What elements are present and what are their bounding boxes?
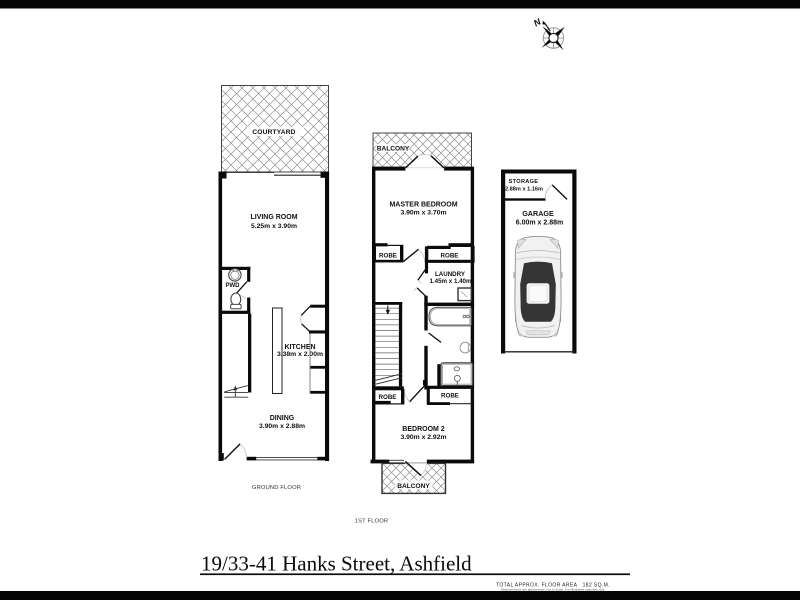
svg-text:BEDROOM 2: BEDROOM 2 — [402, 426, 445, 433]
svg-text:ROBE: ROBE — [441, 252, 459, 259]
svg-text:MASTER BEDROOM: MASTER BEDROOM — [389, 202, 457, 209]
svg-text:3.90m x 2.92m: 3.90m x 2.92m — [400, 434, 446, 441]
svg-text:LAUNDRY: LAUNDRY — [435, 271, 466, 278]
svg-text:BALCONY: BALCONY — [397, 483, 430, 490]
svg-text:GARAGE: GARAGE — [522, 209, 554, 218]
svg-text:3.38m x 2.00m: 3.38m x 2.00m — [277, 351, 323, 358]
svg-text:ROBE: ROBE — [441, 393, 459, 400]
svg-text:2.88m x 1.16m: 2.88m x 1.16m — [505, 187, 543, 193]
svg-text:KITCHEN: KITCHEN — [284, 344, 315, 351]
svg-text:ROBE: ROBE — [379, 252, 397, 259]
svg-text:3.90m x 3.70m: 3.90m x 3.70m — [400, 210, 446, 217]
svg-text:BALCONY: BALCONY — [377, 146, 410, 153]
svg-text:19/33-41 Hanks Street, Ashfiel: 19/33-41 Hanks Street, Ashfield — [201, 552, 472, 576]
svg-text:COURTYARD: COURTYARD — [252, 129, 295, 136]
svg-text:1.45m x 1.40m: 1.45m x 1.40m — [430, 278, 472, 285]
svg-text:STORAGE: STORAGE — [509, 179, 539, 185]
svg-text:PWD: PWD — [226, 283, 241, 289]
svg-text:3.90m x 2.88m: 3.90m x 2.88m — [259, 423, 305, 430]
svg-text:6.00m x 2.88m: 6.00m x 2.88m — [516, 220, 563, 227]
svg-text:Measurements are approximate.: Measurements are approximate. Not to Sca… — [501, 588, 605, 592]
svg-text:GROUND FLOOR: GROUND FLOOR — [252, 485, 301, 491]
svg-text:ROBE: ROBE — [379, 394, 397, 401]
svg-text:DINING: DINING — [270, 415, 295, 422]
svg-text:5.25m x 3.90m: 5.25m x 3.90m — [251, 223, 297, 230]
svg-text:LIVING ROOM: LIVING ROOM — [250, 214, 297, 221]
svg-text:1ST FLOOR: 1ST FLOOR — [355, 519, 388, 525]
